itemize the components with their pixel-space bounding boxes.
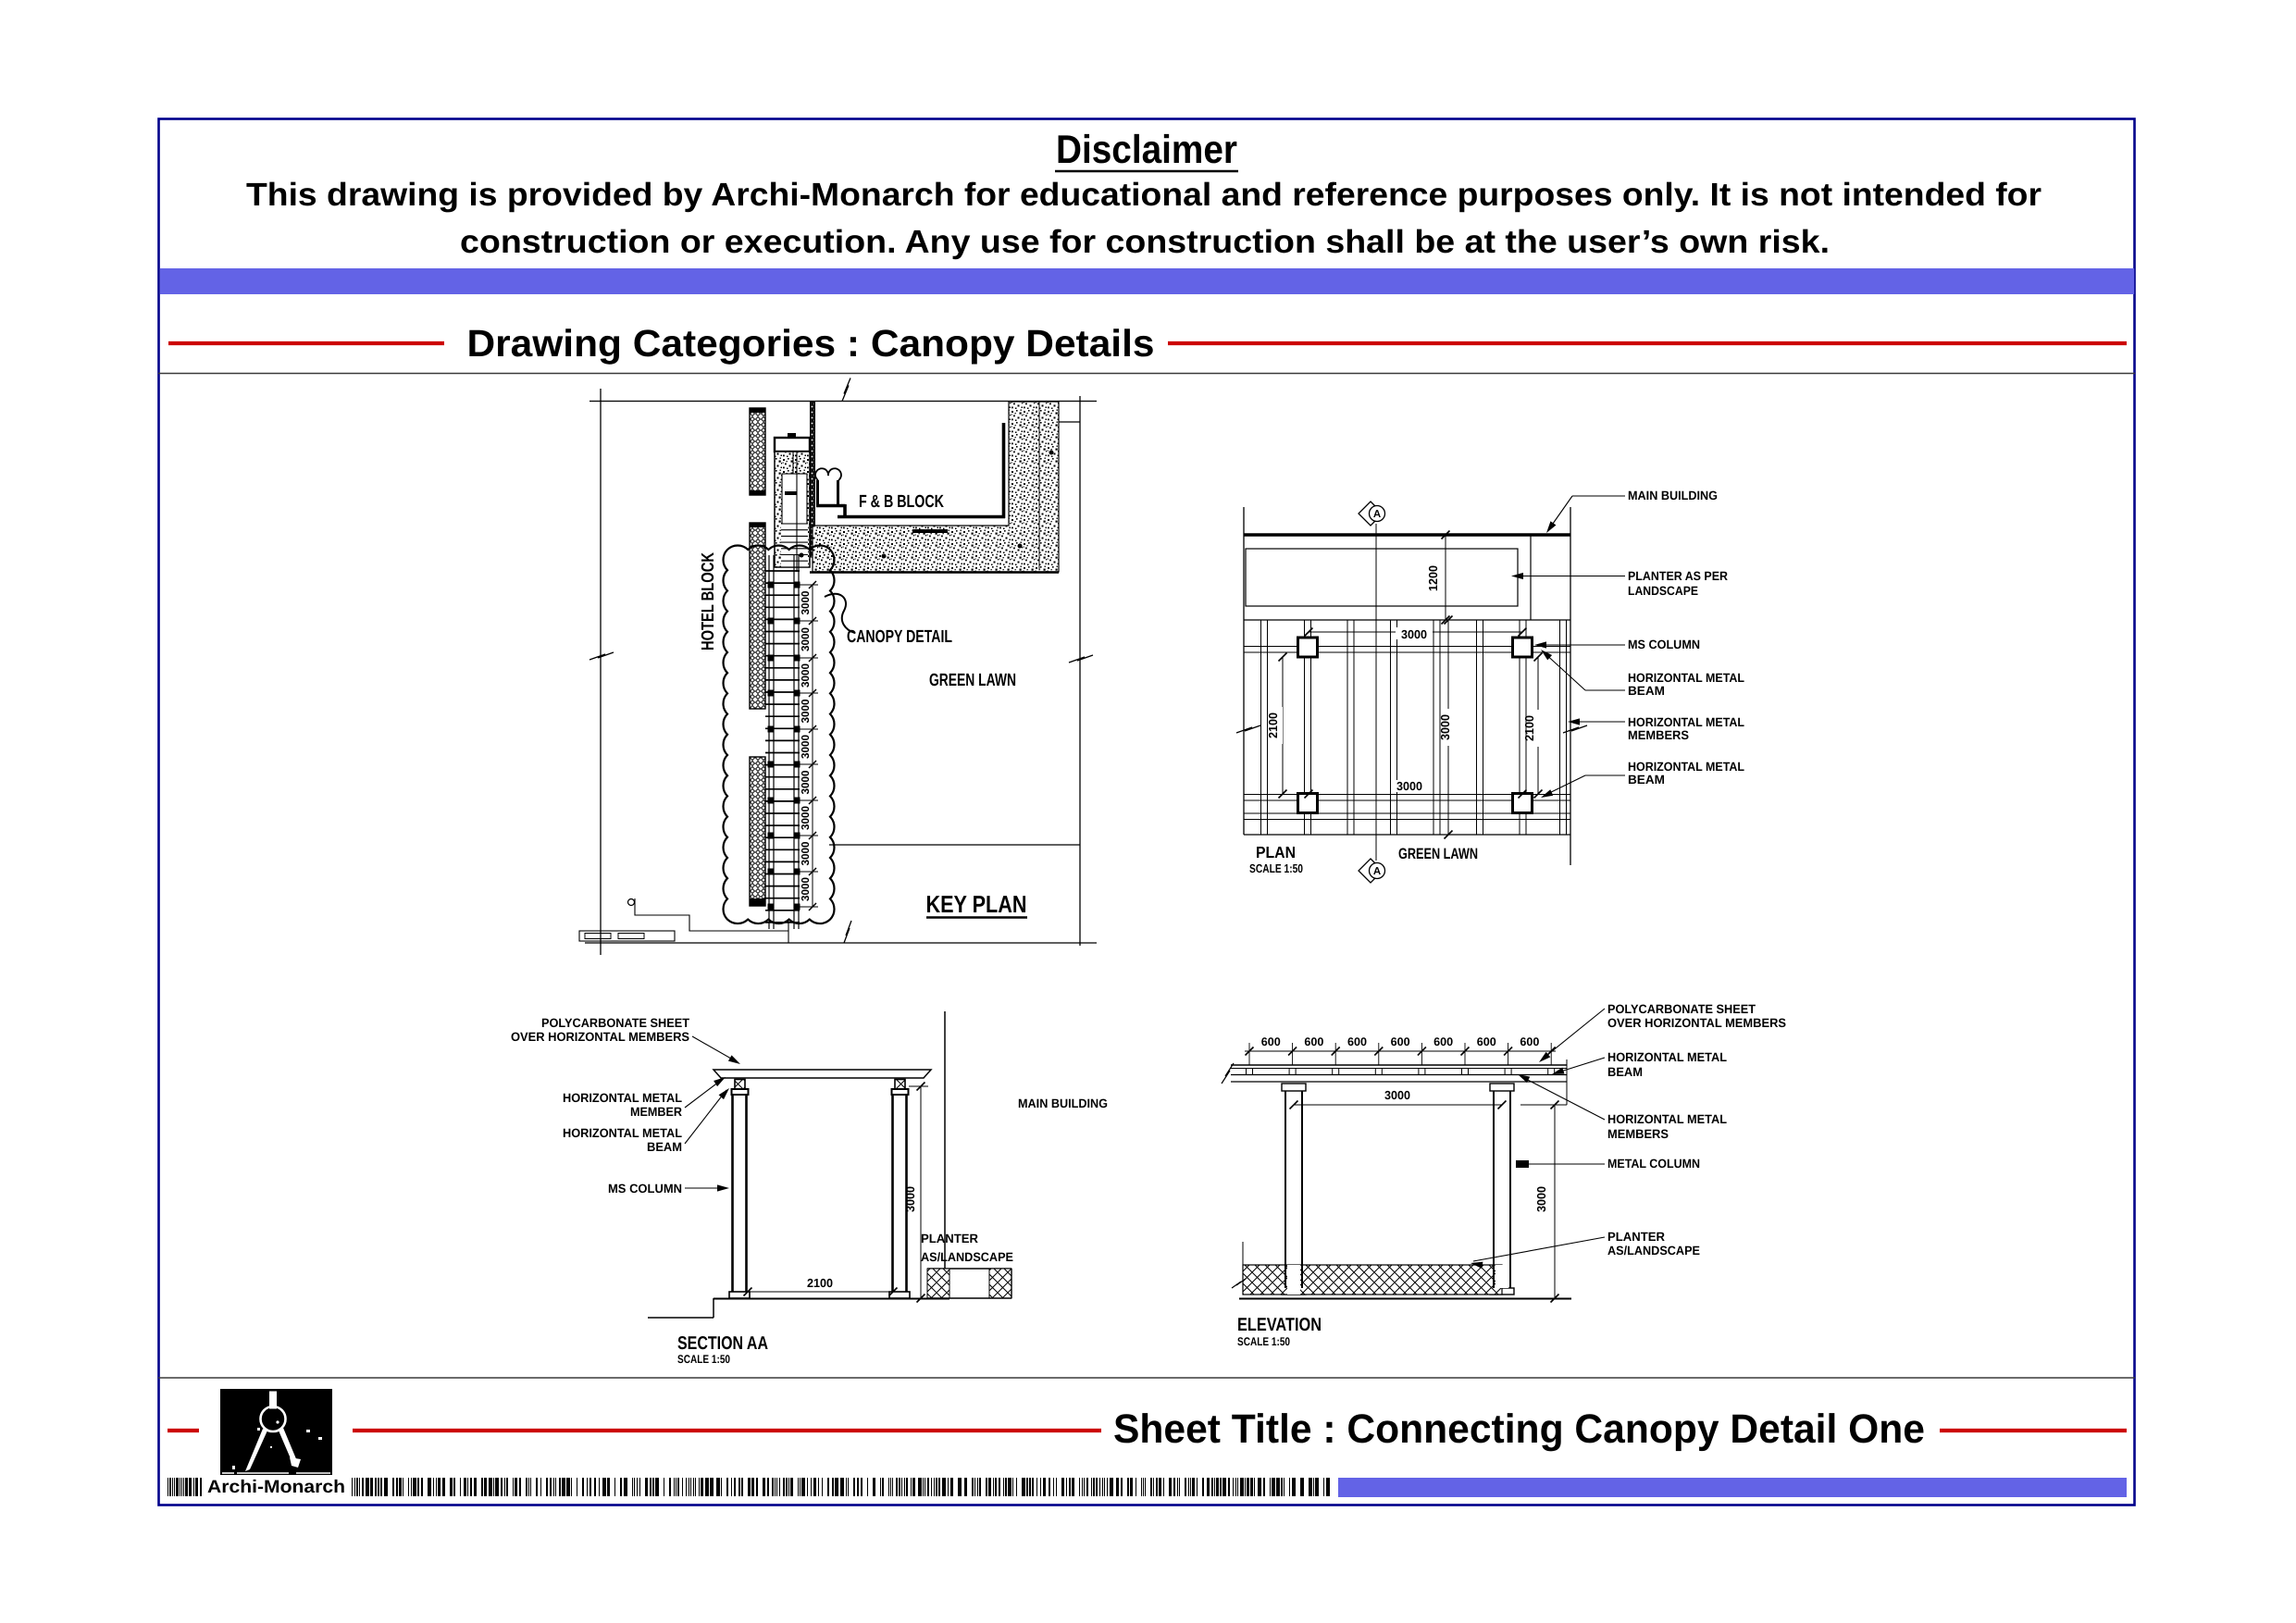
svg-text:HORIZONTAL METAL: HORIZONTAL METAL — [1628, 715, 1744, 729]
svg-text:3000: 3000 — [800, 877, 812, 901]
svg-text:HORIZONTAL METAL: HORIZONTAL METAL — [1628, 760, 1744, 774]
svg-text:3000: 3000 — [1401, 627, 1427, 641]
svg-text:GREEN LAWN: GREEN LAWN — [929, 671, 1016, 690]
svg-text:600: 600 — [1347, 1035, 1367, 1048]
svg-text:3000: 3000 — [1384, 1088, 1410, 1102]
svg-text:BEAM: BEAM — [1628, 684, 1665, 698]
svg-text:SCALE 1:50: SCALE 1:50 — [677, 1353, 730, 1366]
svg-text:3000: 3000 — [800, 663, 812, 688]
svg-text:3000: 3000 — [903, 1186, 917, 1212]
svg-text:BEAM: BEAM — [647, 1140, 682, 1154]
svg-text:3000: 3000 — [1396, 779, 1422, 793]
svg-text:MS COLUMN: MS COLUMN — [1628, 638, 1700, 651]
svg-text:MEMBERS: MEMBERS — [1628, 728, 1689, 742]
svg-text:BEAM: BEAM — [1628, 773, 1665, 787]
svg-text:3000: 3000 — [800, 771, 812, 795]
svg-text:OVER HORIZONTAL MEMBERS: OVER HORIZONTAL MEMBERS — [511, 1030, 689, 1044]
svg-text:GREEN LAWN: GREEN LAWN — [1398, 846, 1478, 862]
svg-text:3000: 3000 — [1438, 714, 1452, 740]
svg-text:2100: 2100 — [807, 1276, 833, 1290]
svg-text:HORIZONTAL METAL: HORIZONTAL METAL — [563, 1126, 682, 1140]
svg-text:2100: 2100 — [1266, 712, 1280, 738]
svg-text:Drawing Categories : Canopy De: Drawing Categories : Canopy Details — [467, 322, 1155, 365]
svg-text:3000: 3000 — [800, 700, 812, 724]
svg-text:3000: 3000 — [800, 842, 812, 866]
svg-text:600: 600 — [1304, 1035, 1323, 1048]
svg-text:600: 600 — [1477, 1035, 1496, 1048]
svg-text:PLANTER AS PER: PLANTER AS PER — [1628, 569, 1728, 583]
svg-text:600: 600 — [1261, 1035, 1281, 1048]
svg-text:SCALE 1:50: SCALE 1:50 — [1237, 1335, 1290, 1348]
svg-text:3000: 3000 — [800, 735, 812, 759]
svg-text:F & B BLOCK: F & B BLOCK — [859, 492, 944, 512]
svg-text:PLAN: PLAN — [1256, 843, 1296, 861]
svg-text:POLYCARBONATE SHEET: POLYCARBONATE SHEET — [1607, 1002, 1756, 1016]
svg-text:CANOPY DETAIL: CANOPY DETAIL — [847, 627, 952, 647]
svg-text:HOTEL BLOCK: HOTEL BLOCK — [699, 552, 718, 650]
svg-text:METAL COLUMN: METAL COLUMN — [1607, 1157, 1700, 1171]
svg-text:OVER HORIZONTAL MEMBERS: OVER HORIZONTAL MEMBERS — [1607, 1016, 1786, 1030]
svg-text:Archi-Monarch: Archi-Monarch — [207, 1477, 345, 1497]
svg-text:LANDSCAPE: LANDSCAPE — [1628, 584, 1698, 598]
svg-text:600: 600 — [1520, 1035, 1539, 1048]
svg-text:SCALE 1:50: SCALE 1:50 — [1249, 861, 1303, 875]
svg-text:MEMBER: MEMBER — [630, 1105, 682, 1119]
svg-text:HORIZONTAL METAL: HORIZONTAL METAL — [1607, 1112, 1727, 1126]
svg-text:ELEVATION: ELEVATION — [1237, 1315, 1322, 1335]
svg-text:HORIZONTAL METAL: HORIZONTAL METAL — [1607, 1050, 1727, 1064]
svg-text:MS COLUMN: MS COLUMN — [608, 1182, 682, 1196]
svg-text:HORIZONTAL METAL: HORIZONTAL METAL — [563, 1091, 682, 1105]
svg-text:POLYCARBONATE SHEET: POLYCARBONATE SHEET — [541, 1016, 690, 1030]
svg-text:600: 600 — [1433, 1035, 1453, 1048]
svg-text:This drawing is provided by Ar: This drawing is provided by Archi-Monarc… — [246, 177, 2042, 213]
svg-text:Disclaimer: Disclaimer — [1056, 128, 1237, 172]
svg-text:3000: 3000 — [800, 591, 812, 615]
svg-text:A: A — [1373, 866, 1381, 877]
svg-text:BEAM: BEAM — [1607, 1065, 1643, 1079]
svg-text:3000: 3000 — [800, 806, 812, 830]
svg-text:3000: 3000 — [800, 627, 812, 651]
svg-text:MAIN BUILDING: MAIN BUILDING — [1628, 489, 1718, 502]
svg-text:SECTION AA: SECTION AA — [677, 1333, 768, 1354]
svg-text:construction or execution. Any: construction or execution. Any use for c… — [460, 224, 1830, 260]
svg-text:PLANTER: PLANTER — [1607, 1230, 1665, 1244]
svg-text:MEMBERS: MEMBERS — [1607, 1127, 1669, 1141]
svg-text:AS/LANDSCAPE: AS/LANDSCAPE — [921, 1250, 1013, 1264]
svg-text:PLANTER: PLANTER — [921, 1232, 978, 1245]
svg-text:HORIZONTAL METAL: HORIZONTAL METAL — [1628, 671, 1744, 685]
svg-text:2100: 2100 — [1522, 715, 1536, 741]
svg-text:600: 600 — [1391, 1035, 1410, 1048]
svg-text:MAIN BUILDING: MAIN BUILDING — [1018, 1096, 1108, 1110]
svg-text:1200: 1200 — [1426, 565, 1440, 591]
svg-text:Sheet Title : Connecting Canop: Sheet Title : Connecting Canopy Detail O… — [1113, 1406, 1925, 1452]
svg-text:A: A — [1373, 509, 1381, 520]
svg-text:KEY PLAN: KEY PLAN — [926, 890, 1027, 918]
svg-text:AS/LANDSCAPE: AS/LANDSCAPE — [1607, 1244, 1700, 1258]
svg-text:3000: 3000 — [1534, 1186, 1548, 1212]
